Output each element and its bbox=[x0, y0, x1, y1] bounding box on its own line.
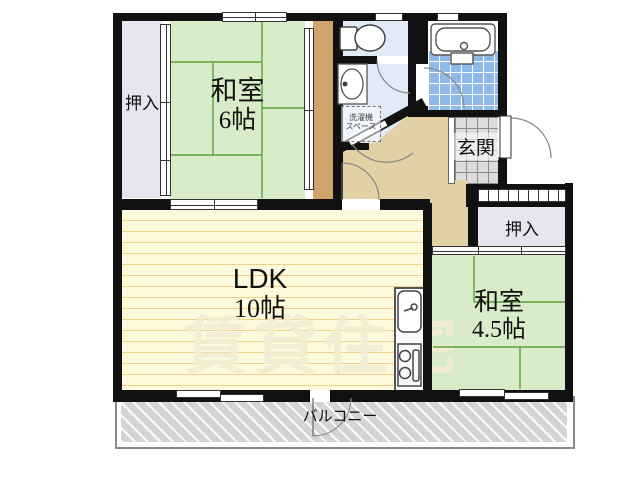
closet-top-left-label: 押入 bbox=[121, 89, 163, 114]
bath-door-arc bbox=[424, 68, 464, 108]
washitsu6-label: 和室 6帖 bbox=[170, 76, 305, 135]
closet-right-label: 押入 bbox=[478, 215, 566, 240]
bathtub-icon bbox=[431, 24, 495, 64]
washbasin-icon bbox=[338, 64, 367, 104]
ldk-label: LDK 10帖 bbox=[160, 263, 360, 324]
washroom-door-arc bbox=[352, 144, 413, 162]
toilet-icon bbox=[340, 25, 385, 51]
ldk-size: 10帖 bbox=[160, 294, 360, 324]
washitsu6-name: 和室 bbox=[170, 76, 305, 107]
washitsu45-entry-fusuma bbox=[432, 246, 566, 255]
entry-door-leaf bbox=[500, 116, 511, 158]
ldk-name: LDK bbox=[160, 263, 360, 294]
closet-right-window bbox=[478, 189, 566, 202]
bath-window bbox=[437, 13, 459, 21]
ldk-door-arc bbox=[342, 163, 379, 200]
washitsu45-balcony-window-right-panel bbox=[504, 392, 549, 400]
entry-door-arc bbox=[511, 118, 551, 158]
washitsu45-balcony-window-left-panel bbox=[459, 389, 505, 397]
washitsu6-right-sliding-door bbox=[304, 28, 314, 190]
washitsu45-size: 4.5帖 bbox=[432, 317, 566, 344]
balcony-label: バルコニー bbox=[288, 405, 392, 426]
stove-icon bbox=[398, 344, 421, 386]
washitsu6-top-window bbox=[222, 12, 287, 22]
genkan-label: 玄関 bbox=[453, 133, 499, 160]
laundry-space-line1: 洗濯機 bbox=[342, 113, 380, 122]
laundry-space-box: 洗濯機 スペース bbox=[341, 106, 381, 142]
toilet-door-arc bbox=[377, 60, 410, 93]
kitchen-sink-icon bbox=[398, 291, 421, 332]
washitsu6-ldk-sliding-door bbox=[170, 199, 258, 210]
ldk-balcony-window-right-panel bbox=[220, 394, 264, 402]
ldk-balcony-window-left-panel bbox=[176, 390, 221, 398]
toilet-window bbox=[375, 13, 403, 21]
washitsu45-name: 和室 bbox=[432, 288, 566, 317]
laundry-space-line2: スペース bbox=[342, 122, 380, 131]
washitsu6-size: 6帖 bbox=[170, 107, 305, 135]
floor-plan: 賃貸住宅 bbox=[0, 0, 640, 480]
washitsu45-label: 和室 4.5帖 bbox=[432, 288, 566, 344]
